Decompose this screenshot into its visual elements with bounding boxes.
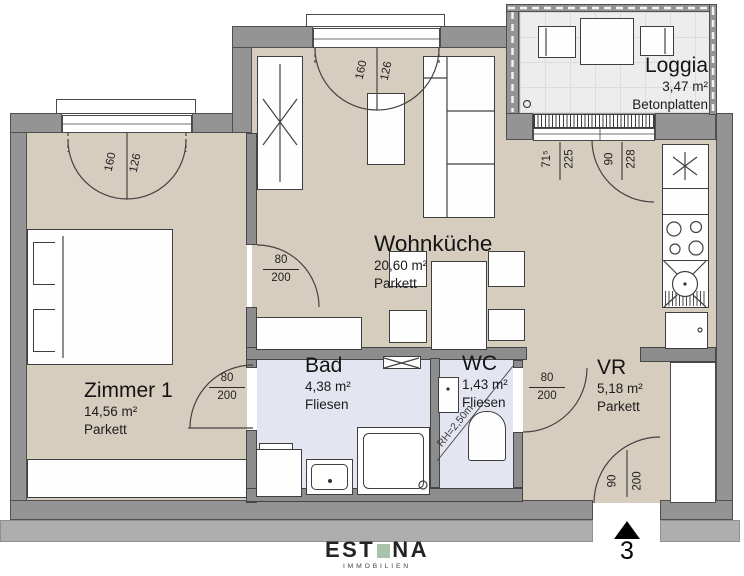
room-label-bad: Bad 4,38 m² Fliesen: [305, 354, 351, 414]
dining-chair: [389, 310, 427, 343]
kitchen-counter: [662, 188, 709, 215]
wohnkueche-window-sill: [306, 14, 445, 27]
wall-wc-vr-stub: [513, 360, 523, 368]
room-area: 20,60 m²: [374, 257, 492, 275]
logo-text-left: EST: [325, 537, 375, 562]
wall-wohnkueche-top-right: [440, 26, 513, 48]
radiator: [383, 356, 421, 369]
loggia-railing-top: [506, 4, 717, 12]
kitchen-stove: [662, 214, 709, 261]
room-name: Bad: [305, 354, 351, 378]
zimmer1-sideboard: [27, 459, 247, 498]
dim-loggia-door-w: 71⁵: [541, 150, 553, 168]
room-label-zimmer1: Zimmer 1 14,56 m² Parkett: [84, 379, 173, 439]
room-area: 1,43 m²: [462, 376, 508, 394]
room-floor-type: Parkett: [374, 275, 492, 293]
wall-kitchen-bottom: [640, 347, 716, 362]
dim-entrance-door-h: 200: [632, 471, 644, 490]
window-table: [367, 93, 405, 165]
wall-wohnkueche-top-left: [232, 26, 313, 48]
wall-zimmer1-wohnkueche-upper: [246, 133, 257, 245]
bed-pillow-top: [33, 242, 55, 285]
wc-washbasin: [438, 377, 459, 413]
room-area: 4,38 m²: [305, 378, 351, 396]
kitchen-appliance: [665, 312, 708, 349]
room-label-wc: WC 1,43 m² Fliesen: [462, 352, 508, 412]
wall-outer-band-right: [660, 520, 740, 542]
room-name: Zimmer 1: [84, 379, 173, 403]
zimmer1-window-sill: [56, 99, 196, 114]
room-area: 5,18 m²: [597, 380, 643, 398]
dim-loggia-window-h: 228: [626, 149, 638, 168]
bad-washbasin-bowl: [311, 464, 348, 490]
dim-door-zimmer1-bad: 80 200: [205, 372, 249, 402]
dining-chair: [488, 251, 525, 287]
room-area: 3,47 m²: [565, 78, 708, 96]
toilet: [468, 411, 506, 461]
wall-bottom-left: [10, 500, 593, 520]
estona-logo: ESTNA IMMOBILIEN: [297, 537, 457, 570]
logo-square-icon: [377, 544, 390, 558]
unit-number: 3: [611, 537, 643, 566]
bad-washbasin: [306, 459, 353, 495]
shaft-niche: [670, 362, 716, 503]
wall-zimmer1-top-left: [10, 113, 62, 133]
wall-wc-vr-lower: [513, 432, 523, 488]
wall-loggia-left: [506, 8, 519, 115]
kitchen-fridge: [662, 144, 709, 189]
shower: [357, 427, 430, 495]
room-label-wohnkueche: Wohnküche 20,60 m² Parkett: [374, 231, 492, 293]
loggia-railing-right: [709, 4, 717, 115]
loggia-threshold-hatch: [533, 114, 655, 128]
room-floor-type: Parkett: [84, 421, 173, 439]
dim-door-zimmer1-wohnkueche: 80 200: [259, 254, 303, 284]
wall-left: [10, 113, 27, 520]
bed-pillow-bottom: [33, 309, 55, 352]
wall-right: [716, 113, 733, 520]
dim-entrance-door-w: 90: [606, 475, 618, 488]
zimmer1-window: [62, 115, 192, 133]
room-floor-type: Fliesen: [305, 396, 351, 414]
room-label-vr: VR 5,18 m² Parkett: [597, 356, 643, 416]
sofa: [423, 56, 495, 218]
room-name: WC: [462, 352, 508, 376]
room-name: Loggia: [565, 54, 708, 78]
wohnkueche-window: [313, 28, 440, 48]
shower-tray: [363, 433, 424, 489]
room-floor-type: Betonplatten: [565, 96, 708, 114]
loggia-door-window-band: [533, 128, 655, 141]
room-name: Wohnküche: [374, 231, 492, 257]
kitchen-sink-drainer: [665, 291, 706, 306]
wall-under-loggia-right: [655, 113, 716, 140]
sideboard: [256, 317, 362, 350]
dim-loggia-window-w: 90: [603, 153, 615, 166]
floor-plan-canvas: Zimmer 1 14,56 m² Parkett Wohnküche 20,6…: [0, 0, 744, 576]
dim-door-wc: 80 200: [525, 372, 569, 402]
wardrobe: [257, 56, 303, 190]
wall-under-loggia-left: [506, 113, 533, 140]
washing-machine: [256, 449, 302, 497]
dim-loggia-door-h: 225: [564, 149, 576, 168]
room-area: 14,56 m²: [84, 403, 173, 421]
loggia-chair: [640, 26, 674, 56]
room-label-loggia: Loggia 3,47 m² Betonplatten: [565, 54, 708, 114]
logo-subtitle: IMMOBILIEN: [297, 563, 457, 570]
room-floor-type: Parkett: [597, 398, 643, 416]
logo-text-right: NA: [392, 537, 429, 562]
wall-bottom-right: [660, 500, 733, 520]
dining-chair: [488, 309, 525, 341]
room-name: VR: [597, 356, 643, 380]
